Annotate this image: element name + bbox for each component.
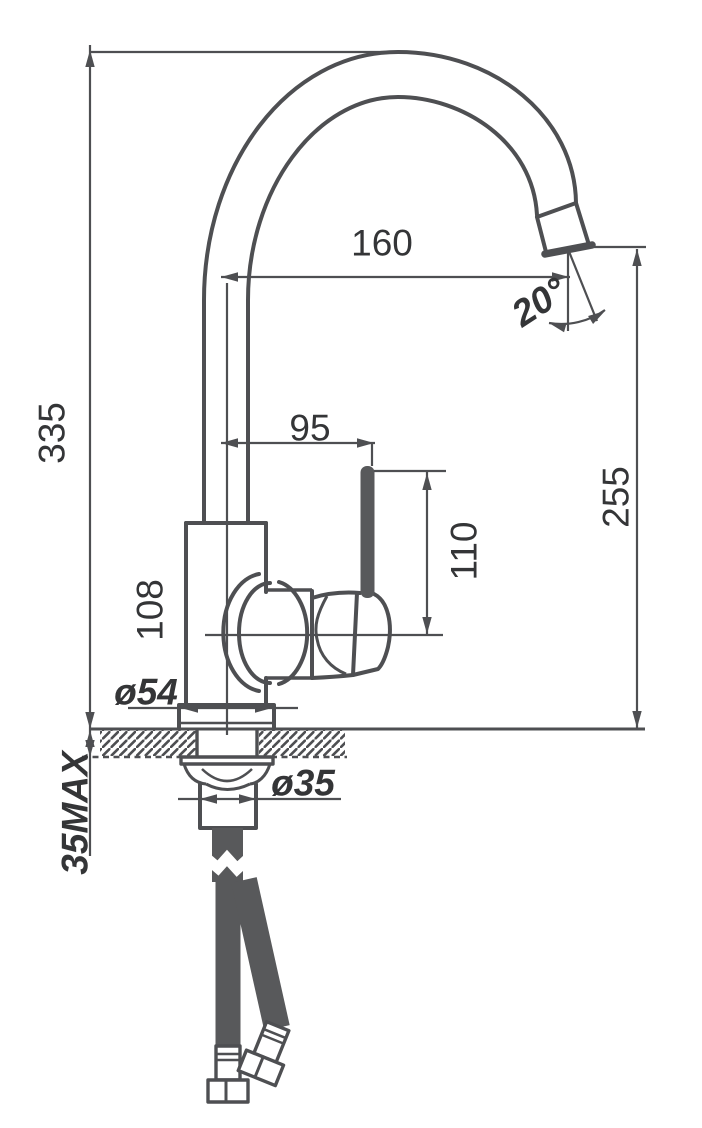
angle-flow-direction-line (568, 249, 597, 321)
ball-inner-arc (239, 583, 270, 683)
dim-label-counter-max-thickness: 35MAX (55, 749, 96, 875)
arrowhead (85, 712, 94, 729)
mounting-nut-bottom-arc (206, 784, 250, 790)
technical-drawing-canvas: 335 160 95 255 110 108 ø54 ø35 35MAX 20° (0, 0, 702, 1128)
ball-joint (223, 574, 312, 691)
mounting-washer (181, 757, 273, 764)
arrowhead (422, 617, 431, 634)
dim-label-spout-reach: 160 (351, 223, 413, 264)
countertop-hatch-right (259, 730, 345, 756)
aerator-joint-line (537, 203, 576, 217)
dimension-labels: 335 160 95 255 110 108 ø54 ø35 35MAX 20° (32, 223, 637, 875)
arrowhead (239, 794, 256, 803)
dim-label-overall-height: 335 (32, 402, 73, 464)
left-hose-fitting (208, 1046, 248, 1102)
ball-right-arc (279, 582, 307, 684)
spout-inner-edge (248, 97, 537, 523)
arrowhead (221, 438, 238, 447)
dim-label-handle-offset: 95 (289, 408, 330, 449)
spout-outer-edge (204, 52, 576, 523)
handle-adapter-top-edge (312, 593, 360, 598)
mounting-nut-inner-arc (202, 769, 252, 781)
arrowhead (422, 473, 431, 490)
dim-label-shank-diameter: ø35 (271, 763, 336, 804)
arrowhead (200, 794, 217, 803)
right-supply-hose (244, 880, 277, 1028)
arrowhead (632, 711, 641, 728)
mounting-hardware (181, 757, 273, 828)
dim-label-body-height: 108 (130, 579, 171, 641)
right-hose-fitting (238, 1019, 296, 1086)
arrowhead (632, 249, 641, 266)
handle-grip-bar (361, 466, 375, 598)
countertop-hatch-left (100, 730, 196, 756)
handle-adapter-bottom-edge (312, 675, 353, 678)
dim-label-outlet-height: 255 (596, 466, 637, 528)
dim-label-base-diameter: ø54 (114, 672, 178, 713)
left-fitting-ferrule (216, 1046, 240, 1080)
arrowhead (548, 318, 567, 332)
faucet-dimension-drawing: 335 160 95 255 110 108 ø54 ø35 35MAX 20° (0, 0, 702, 1128)
faucet-body (186, 283, 443, 735)
handle-lever (312, 466, 390, 678)
dim-label-handle-height: 110 (444, 522, 485, 581)
countertop-section (82, 729, 645, 757)
left-fitting-nut (208, 1080, 248, 1102)
arrowhead (221, 272, 238, 281)
supply-hoses (204, 828, 296, 1102)
